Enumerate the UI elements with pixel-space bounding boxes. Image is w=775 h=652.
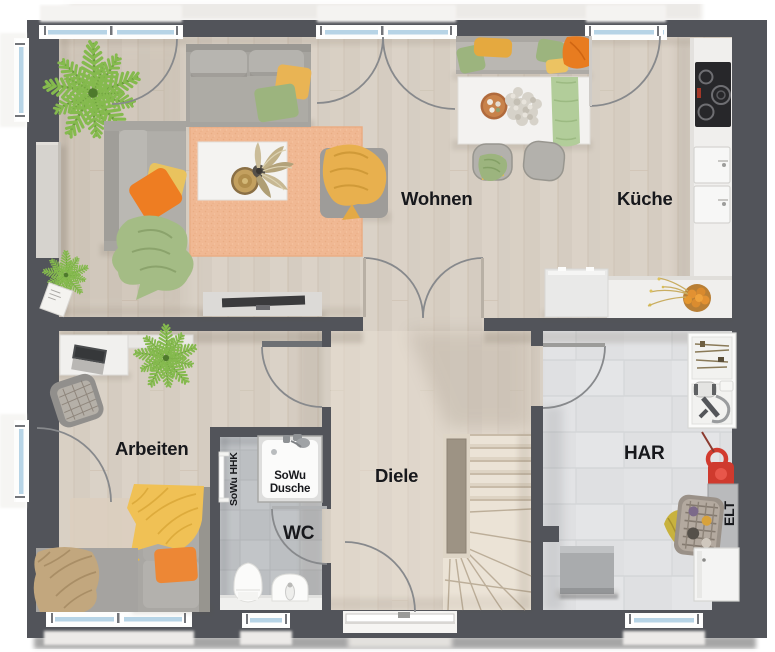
svg-text:Arbeiten: Arbeiten [115,438,188,459]
svg-text:SoWu HHK: SoWu HHK [228,452,240,506]
svg-text:ELT: ELT [721,501,737,526]
svg-text:Küche: Küche [617,188,673,209]
svg-text:SoWu: SoWu [274,470,306,482]
svg-text:HAR: HAR [624,443,665,464]
svg-text:WC: WC [283,523,315,544]
svg-text:Dusche: Dusche [270,483,310,495]
svg-text:Wohnen: Wohnen [401,188,472,209]
svg-text:Diele: Diele [375,465,418,486]
